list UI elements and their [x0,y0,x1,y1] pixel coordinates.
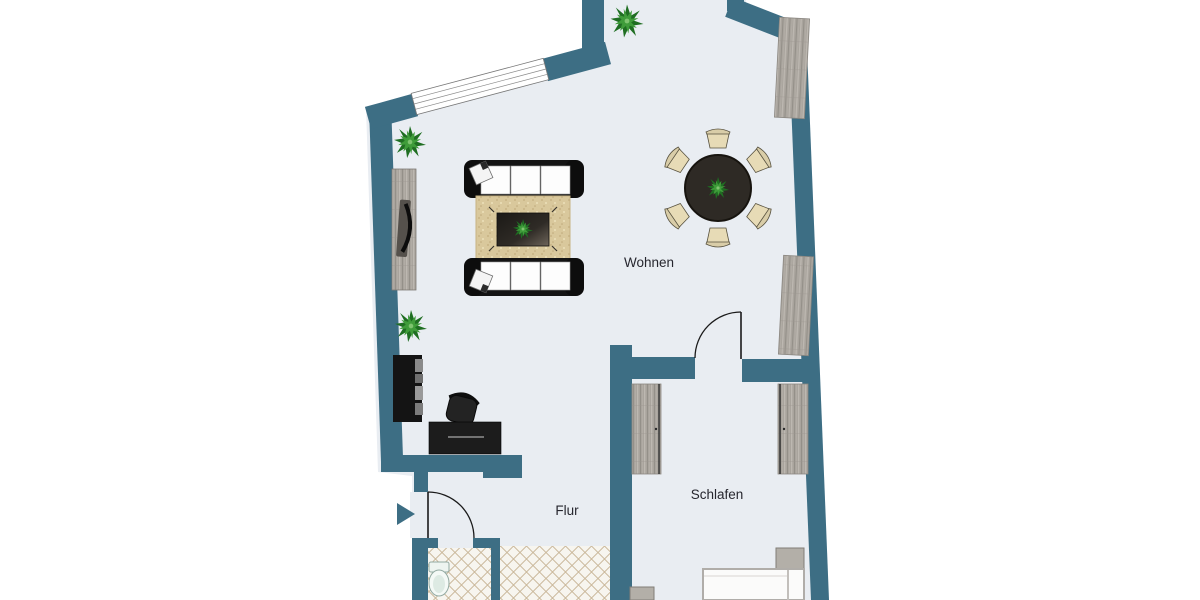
wall-bedroom-top-right [742,359,817,382]
bath-tile-floor [500,546,610,600]
wall-window-left [368,105,415,118]
wall-top-stub [582,0,604,52]
wall-bedroom-top-left [610,357,695,379]
toilet-icon [429,562,449,596]
bookshelf-icon [393,355,423,422]
sofa-icon [464,160,584,198]
wall-entrance-jamb [414,472,428,492]
wardrobe-icon [778,255,813,355]
wall-top-right-stub [727,0,744,11]
sofa-icon [464,258,584,296]
dining-chair-icon [706,129,730,148]
wall-window-right [545,53,608,70]
wall-wc-top-right [473,538,500,548]
coffee-table-icon [497,213,549,246]
wardrobe-icon [632,384,661,474]
wall-wc-divider [491,548,500,600]
room-label-wohnen: Wohnen [624,255,674,270]
floorplan-canvas: Wohnen Flur Schlafen [0,0,1200,600]
room-label-flur: Flur [555,503,579,518]
wall-bedroom-left [610,345,632,600]
wardrobe-icon [774,17,809,118]
room-label-schlafen: Schlafen [691,487,744,502]
wall-living-bottom [381,455,522,472]
wardrobe-icon [778,384,808,474]
bed-icon [703,569,804,600]
dining-chair-icon [706,228,730,247]
nightstand-icon [630,587,654,600]
wall-wc-top-left [412,538,438,548]
wall-living-bottom-step [483,472,522,478]
floorplan-drawing: Wohnen Flur Schlafen [0,0,1200,600]
desk-icon [429,422,501,454]
